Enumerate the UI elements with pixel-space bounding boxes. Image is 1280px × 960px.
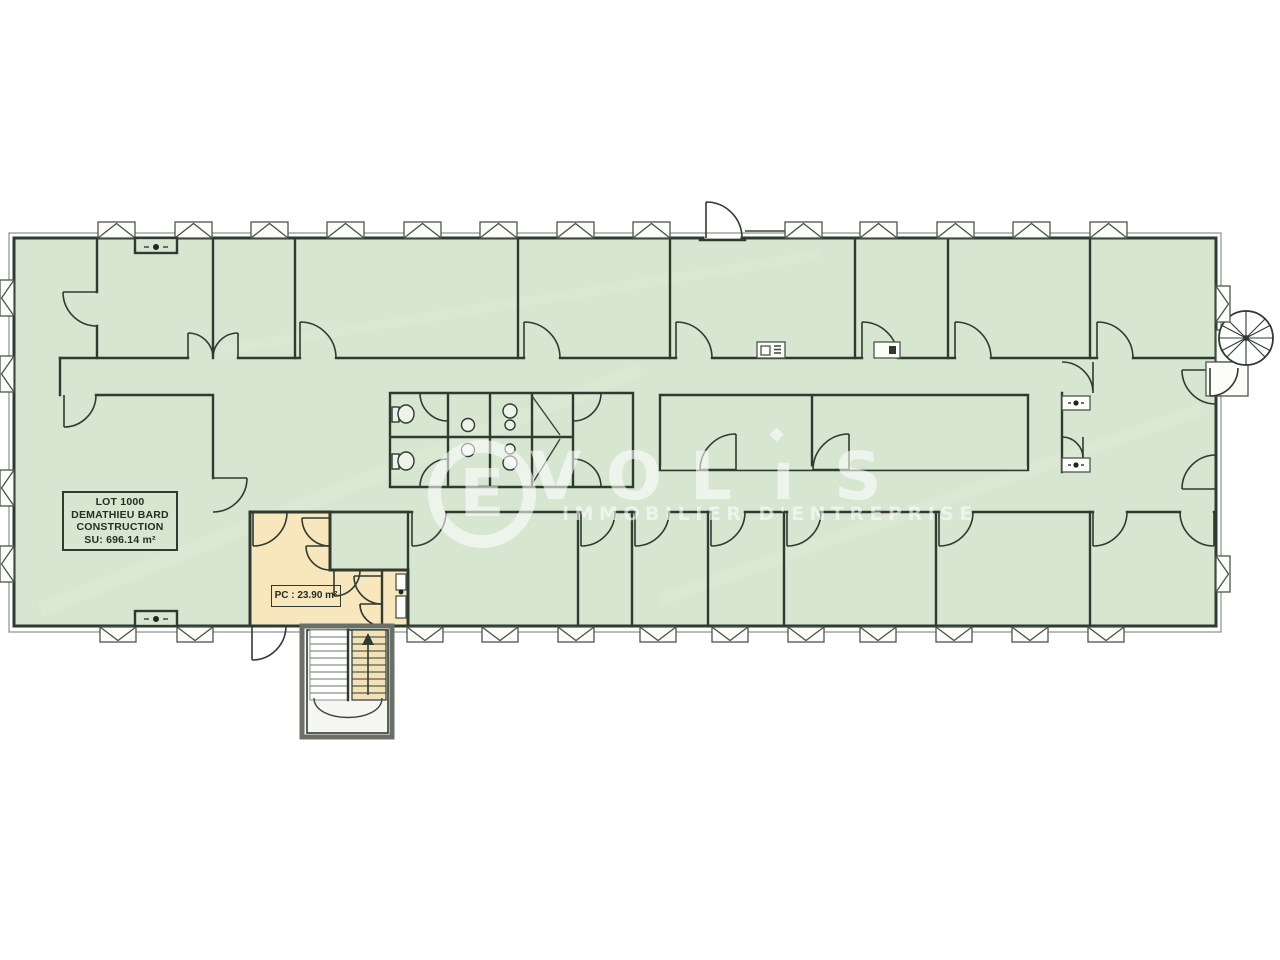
floor-plan-page: LOT 1000 DEMATHIEU BARD CONSTRUCTION SU:… (0, 0, 1280, 960)
exterior-door (252, 626, 286, 660)
lot-company-1: DEMATHIEU BARD (71, 509, 169, 522)
lot-label: LOT 1000 DEMATHIEU BARD CONSTRUCTION SU:… (62, 491, 178, 551)
lot-surface: SU: 696.14 m² (84, 534, 155, 547)
meeting-rooms (660, 395, 1028, 470)
main-entrance-door (700, 202, 797, 240)
staircase (302, 626, 392, 737)
pc-room-area: PC : 23.90 m² (275, 587, 338, 605)
window-icons-bottom (100, 627, 1124, 642)
pc-room-label: PC : 23.90 m² (271, 585, 341, 607)
floor-plan-drawing (0, 0, 1280, 960)
window-icons-left (0, 280, 14, 582)
window-icons-top (98, 222, 1127, 238)
lot-number: LOT 1000 (96, 496, 145, 509)
lot-company-2: CONSTRUCTION (77, 521, 164, 534)
building-outline (9, 233, 1221, 632)
